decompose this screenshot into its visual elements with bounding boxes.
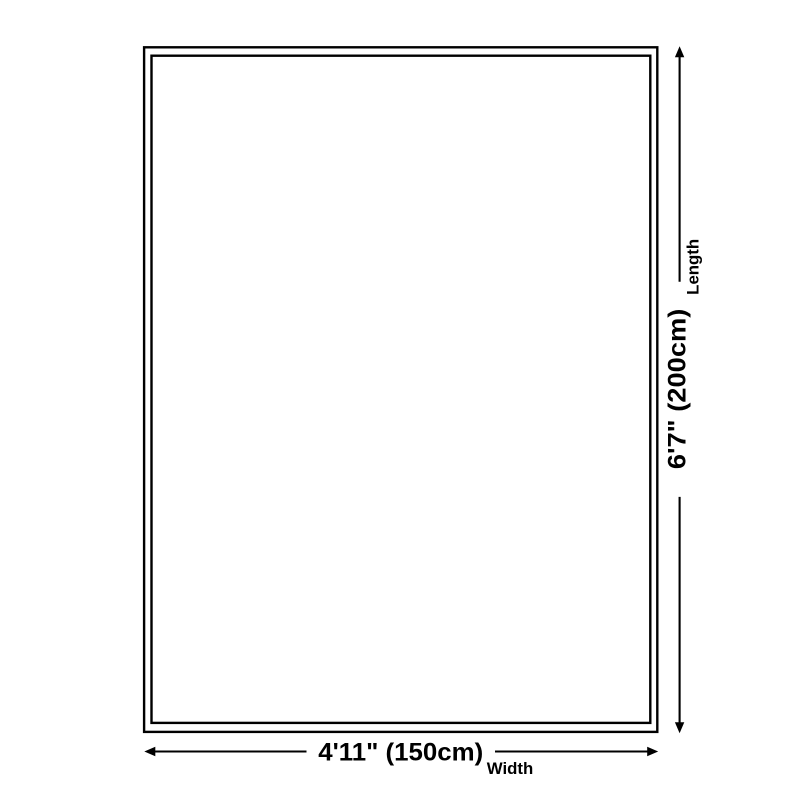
svg-text:6'7" (200cm): 6'7" (200cm) bbox=[664, 309, 692, 470]
svg-text:Width: Width bbox=[487, 759, 533, 778]
svg-text:4'11" (150cm): 4'11" (150cm) bbox=[318, 738, 483, 766]
svg-text:Length: Length bbox=[684, 239, 703, 295]
